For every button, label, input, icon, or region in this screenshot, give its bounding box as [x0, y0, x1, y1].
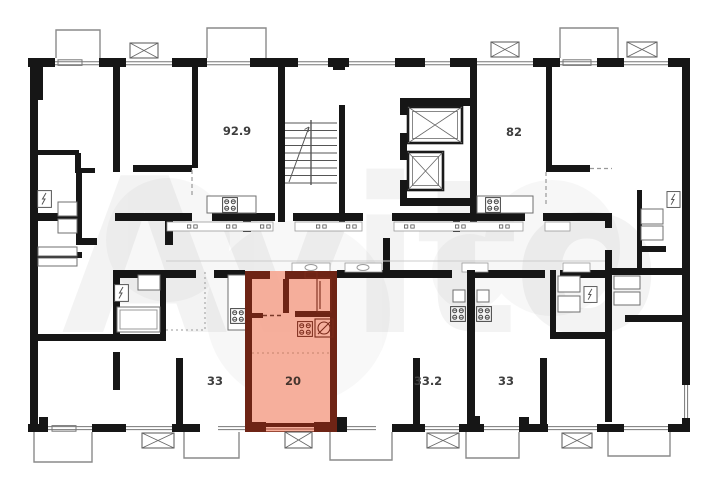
water-heater-icon	[667, 192, 680, 208]
washer-icon	[38, 191, 52, 208]
unit-33-right-label: 33	[498, 374, 514, 388]
vent-box-icons-bottom	[142, 432, 592, 448]
unit-82-label: 82	[506, 125, 522, 139]
floorplan-svg: Avito	[0, 0, 720, 489]
unit-92-9-label: 92.9	[223, 124, 251, 138]
staircase	[285, 120, 337, 185]
floorplan-image: Avito	[0, 0, 720, 489]
unit-33-2-label: 33.2	[414, 374, 442, 388]
apartment-20-fill	[245, 271, 337, 432]
elevator-1	[408, 107, 462, 143]
vent-box-icons-top	[130, 42, 657, 58]
apartment-20-region[interactable]	[245, 271, 337, 432]
washer-icon	[115, 285, 129, 302]
unit-20-label: 20	[285, 374, 301, 388]
unit-33-left-label: 33	[207, 374, 223, 388]
washer-icon	[584, 287, 597, 303]
elevator-2	[408, 152, 443, 190]
